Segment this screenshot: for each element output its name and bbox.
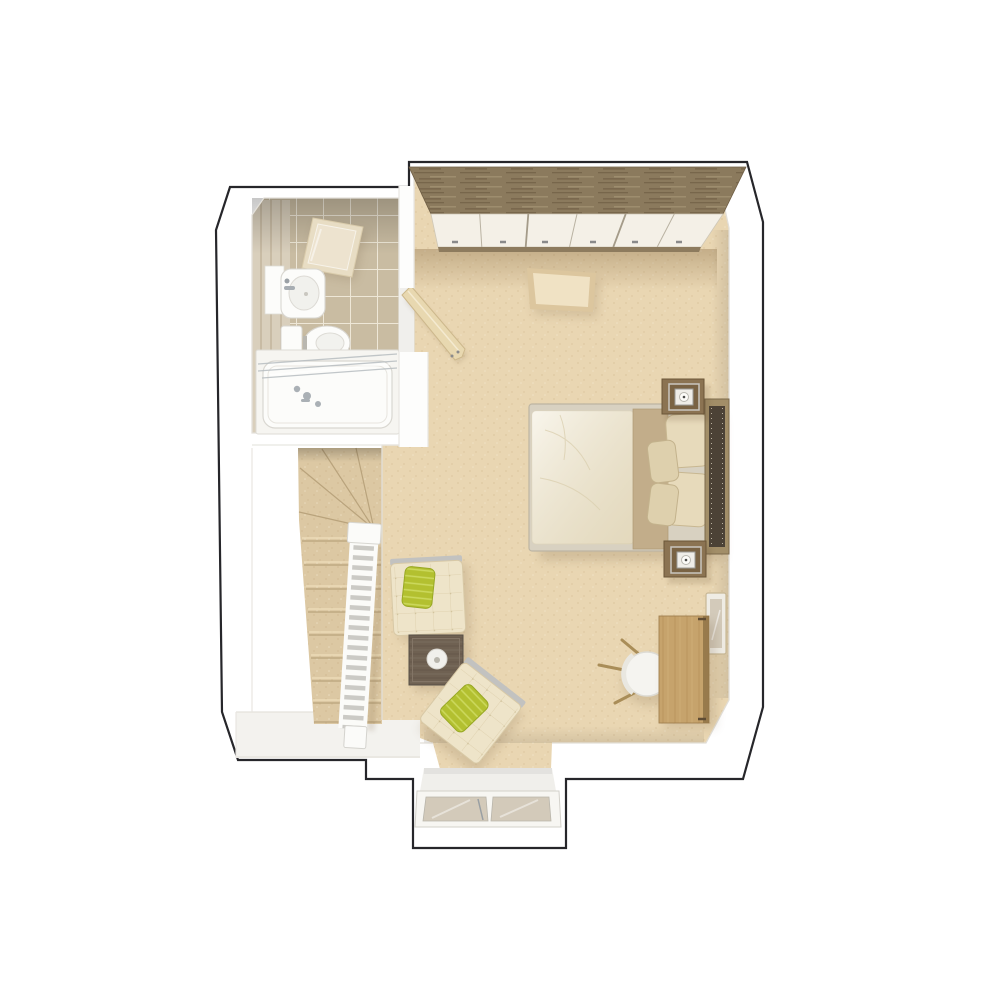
newel-post <box>344 725 367 748</box>
dormer-sill-shadow <box>424 768 552 774</box>
basin-tap-handle <box>285 279 290 284</box>
lamp-bottom-finial <box>685 559 688 562</box>
dressing-desk-top <box>659 616 709 723</box>
wardrobe-wood-top <box>409 167 746 214</box>
bedside-table-bottom <box>664 541 712 584</box>
stair-top-shadow <box>298 448 382 462</box>
double-bed <box>529 399 729 561</box>
pillow-front-top <box>647 439 680 483</box>
bedroom-rug <box>527 268 600 318</box>
bedside-table-top <box>662 379 710 421</box>
bathroom-bedroom-wall <box>399 186 414 288</box>
wash-basin <box>265 266 325 318</box>
ensuite-bathroom <box>252 198 399 434</box>
headboard-pad <box>709 406 725 547</box>
bath-tub <box>263 361 392 428</box>
bathtub <box>256 350 399 434</box>
toilet-hinge <box>303 336 307 350</box>
dormer-pane-right <box>491 797 551 821</box>
basin-tap <box>284 286 295 290</box>
basin-bowl <box>289 276 319 310</box>
door-return-wall <box>399 352 428 447</box>
floor-plan-rendering <box>0 0 1000 1000</box>
wardrobe-base-strip <box>438 247 701 252</box>
headboard <box>705 399 729 554</box>
decorative-bowl-center <box>434 657 440 663</box>
door-hinge-dot-2 <box>451 355 454 358</box>
floor-plan-stage <box>0 0 1000 1000</box>
cushion-upper <box>401 566 435 609</box>
pillow-front-bottom <box>647 482 680 526</box>
desk-edge-shade <box>703 616 709 723</box>
basin-drain <box>304 292 308 296</box>
armchair-upper <box>390 555 472 642</box>
rug-center <box>533 273 590 307</box>
lamp-top-finial <box>683 396 686 399</box>
fitted-wardrobe <box>409 167 746 252</box>
dormer-bay <box>415 768 561 827</box>
door-hinge-dot-1 <box>457 351 460 354</box>
handrail-top-cap <box>347 522 381 544</box>
